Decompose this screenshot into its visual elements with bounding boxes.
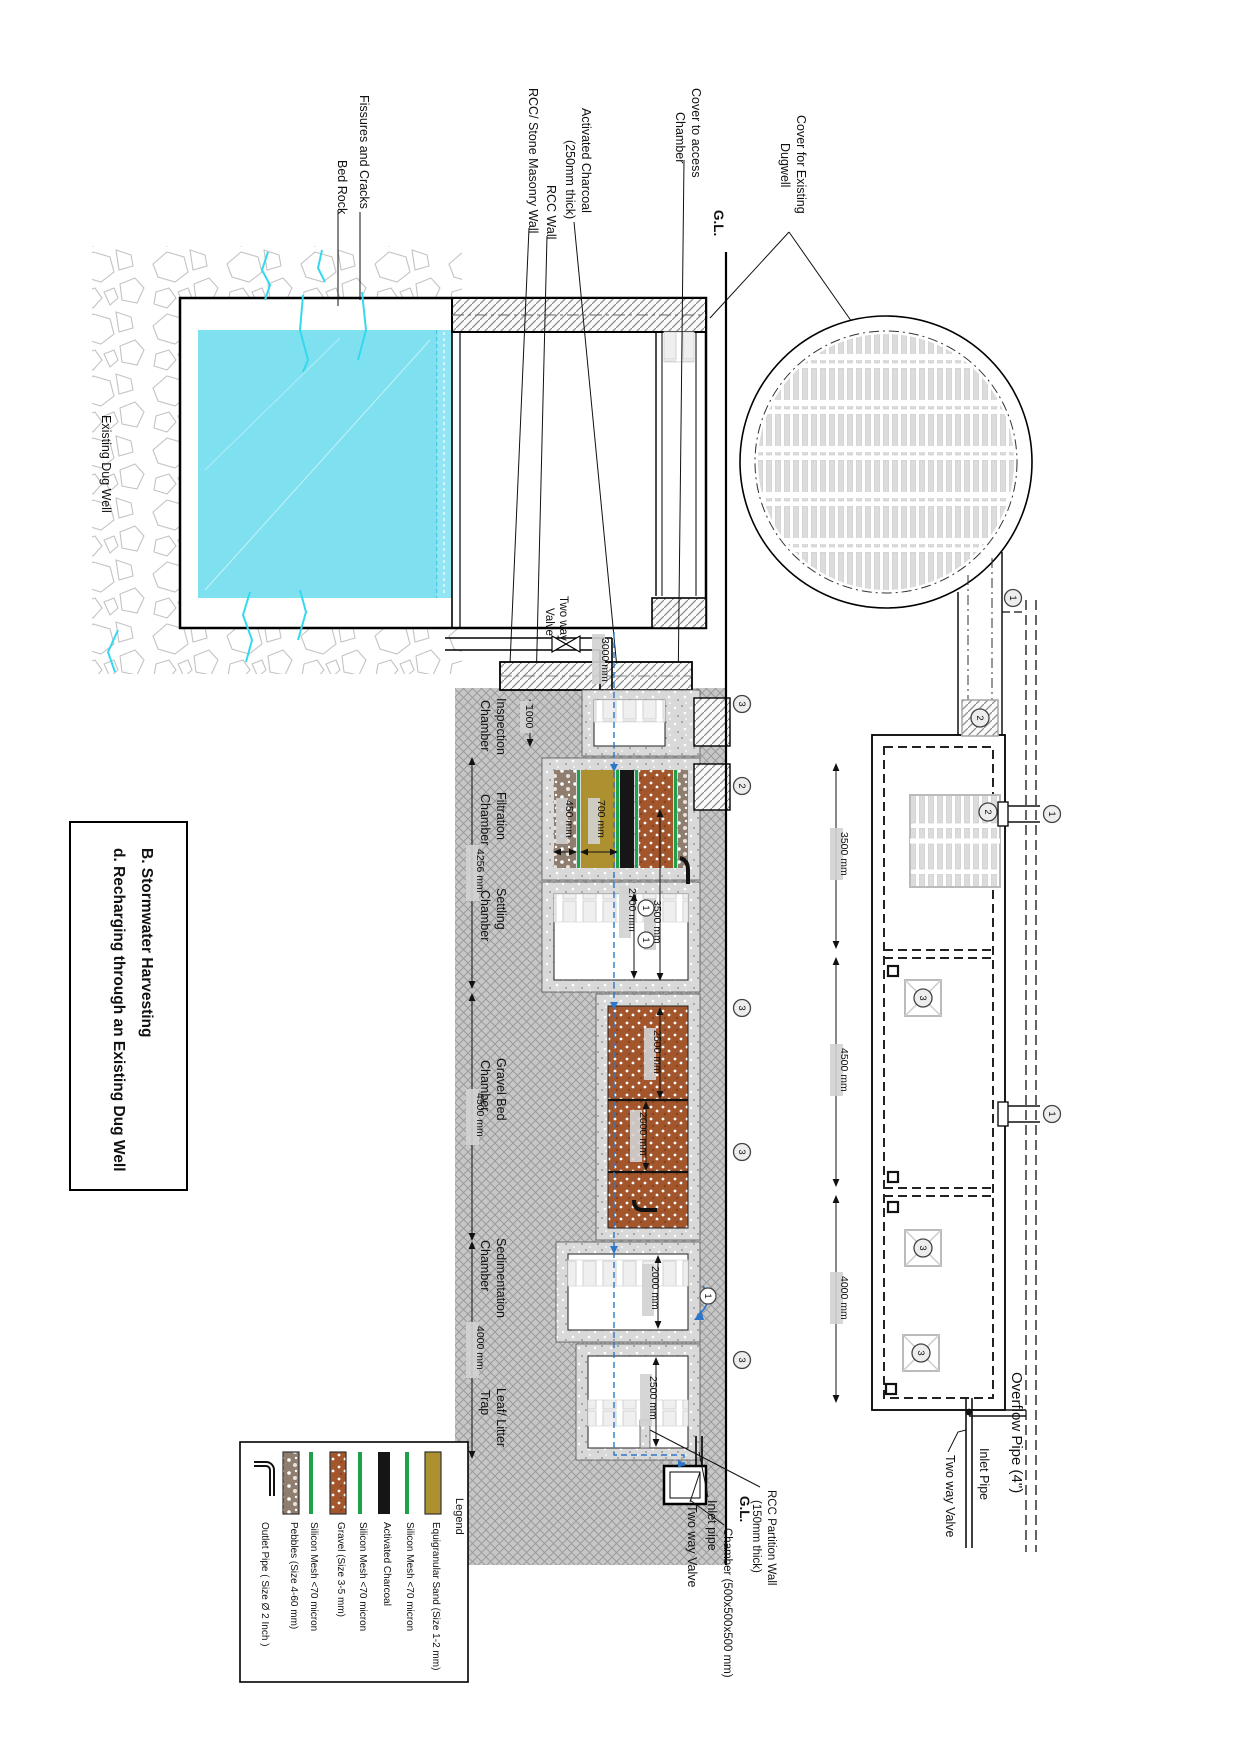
dim-4000: 4000 mm — [474, 1326, 486, 1370]
marker-2: 2 — [736, 783, 747, 788]
gl-top-label: G.L. — [711, 210, 726, 236]
dim-2000: 2000 mm — [637, 1112, 649, 1156]
legend-outlet-pipe-label: Outlet Pipe ( Size Ø 2 Inch ) — [259, 1522, 270, 1647]
inlet-pipe-plan-label: Inlet Pipe — [977, 1448, 991, 1500]
filtration-chamber-label-1: Filtration — [494, 792, 508, 840]
dim-1000: 1000 — [523, 705, 535, 729]
plan-valve-stubs: 1 1 — [998, 802, 1061, 1126]
title-block: B. Stormwater Harvesting d. Recharging t… — [70, 822, 187, 1190]
gl-bottom-label: G.L. — [737, 1496, 752, 1522]
legend-pebbles-label: Pebbles (Size 4-60 mm) — [288, 1522, 299, 1629]
inspection-chamber-label-1: Inspection — [494, 698, 508, 755]
plan-dim-4500: 4500 mm — [838, 1048, 850, 1092]
settling-chamber-label-2: Chamber — [478, 890, 492, 941]
overflow-pipe-label: Overflow Pipe (4") — [1008, 1372, 1025, 1493]
title-line-1: B. Stormwater Harvesting — [138, 848, 155, 1038]
marker-3: 3 — [917, 1245, 928, 1250]
marker-3: 3 — [736, 701, 747, 706]
chamber-train-plan: 2 3 3 3 2 1 — [830, 552, 1061, 1552]
marker-1: 1 — [1007, 595, 1018, 600]
filtration-chamber-label-2: Chamber — [478, 794, 492, 845]
plan-dimensions: 3500 mm 4500 mm 4000 mm — [830, 764, 850, 1402]
title-line-2: d. Recharging through an Existing Dug We… — [110, 848, 127, 1172]
dim-sed-2000: 2000 mm — [649, 1266, 661, 1310]
marker-1: 1 — [1046, 811, 1057, 816]
existing-dug-well-label: Existing Dug Well — [99, 415, 113, 513]
drawing-page: Existing Dug Well Fissures and Cracks Be… — [0, 0, 1241, 1755]
activated-charcoal-label-2: (250mm thick) — [563, 140, 577, 219]
two-way-valve-top-label-1: Two way — [557, 596, 569, 641]
legend-charcoal-label: Activated Charcoal — [381, 1522, 392, 1606]
activated-charcoal-label-1: Activated Charcoal — [579, 108, 593, 213]
marker-1: 1 — [1046, 1111, 1057, 1116]
marker-3: 3 — [917, 995, 928, 1000]
legend-sand-label: Equigranular Sand (Size 1-2 mm) — [430, 1522, 441, 1670]
dim-2500: 2500 mm — [651, 1030, 663, 1074]
two-way-valve-bottom-label: Two way Valve — [685, 1505, 699, 1587]
leaf-litter-trap-label-2: Trap — [478, 1390, 492, 1415]
marker-2: 2 — [982, 809, 993, 814]
sedimentation-chamber-label-2: Chamber — [478, 1240, 492, 1291]
marker-1: 1 — [640, 905, 651, 910]
pebbles-swatch — [283, 1452, 299, 1514]
two-way-valve-plan-label: Two way Valve — [943, 1455, 957, 1537]
marker-3: 3 — [736, 1357, 747, 1362]
sand-swatch — [425, 1452, 441, 1514]
gravel-bed-chamber-label-1: Gravel Bed — [494, 1058, 508, 1121]
dim-4256: 4256 mm — [474, 849, 486, 893]
legend-title: Legend — [453, 1498, 465, 1535]
two-way-valve-top-label-2: Valve — [543, 608, 555, 636]
well-section: Existing Dug Well — [92, 246, 706, 674]
marker-1: 1 — [640, 937, 651, 942]
chamber-size-label: Chamber (500x500x500 mm) — [721, 1528, 733, 1678]
bed-rock-label: Bed Rock — [335, 160, 349, 215]
fissures-label: Fissures and Cracks — [357, 95, 371, 209]
dim-3000: 3000 mm — [599, 638, 611, 682]
filtration-cover — [694, 764, 730, 810]
gravel-swatch — [330, 1452, 346, 1514]
dim-2700: 2700 mm — [626, 888, 638, 932]
rcc-partition-label-1: RCC Partition Wall — [765, 1490, 777, 1585]
legend: Legend Outlet Pipe ( Size Ø 2 Inch ) Peb… — [240, 1442, 468, 1682]
rcc-partition-label-2: (150mm thick) — [750, 1500, 762, 1573]
settling-chamber-label-1: Settling — [494, 888, 508, 930]
stormwater-harvesting-drawing: Existing Dug Well Fissures and Cracks Be… — [0, 0, 1241, 1755]
rcc-stone-label: RCC/ Stone Masonry Wall — [526, 88, 540, 233]
legend-gravel-label: Gravel (Size 3-5 mm) — [335, 1522, 346, 1617]
cover-dugwell-label-1: Cover for Existing — [794, 115, 808, 214]
cover-access-label-1: Cover to access — [689, 88, 703, 178]
legend-mesh-label-3: Silicon Mesh <70 micron — [404, 1522, 415, 1631]
inspection-cover — [694, 698, 730, 746]
rcc-wall-label: RCC Wall — [544, 185, 558, 239]
cover-access-label-2: Chamber — [673, 112, 687, 163]
dim-450: 450 mm — [563, 800, 575, 838]
marker-1: 1 — [702, 1293, 713, 1298]
dim-leaf-2500: 2500 mm — [647, 1376, 659, 1420]
legend-mesh-label-2: Silicon Mesh <70 micron — [357, 1522, 368, 1631]
marker-3: 3 — [736, 1005, 747, 1010]
access-shaft-grating — [664, 332, 694, 362]
plan-dim-4000: 4000 mm — [838, 1276, 850, 1320]
inspection-chamber-label-2: Chamber — [478, 700, 492, 751]
dim-4500: 4500 mm — [474, 1093, 486, 1137]
legend-mesh-label-1: Silicon Mesh <70 micron — [308, 1522, 319, 1631]
cover-dugwell-label-2: Dugwell — [778, 143, 792, 187]
sedimentation-chamber-label-1: Sedimentation — [494, 1238, 508, 1318]
leaf-litter-trap-label-1: Leaf/ Litter — [494, 1388, 508, 1447]
activated-charcoal-swatch — [378, 1452, 390, 1514]
plan-dim-3500: 3500 mm — [838, 832, 850, 876]
marker-2: 2 — [974, 715, 985, 720]
marker-3: 3 — [736, 1149, 747, 1154]
marker-3: 3 — [915, 1350, 926, 1355]
dugwell-plan-circle — [740, 316, 1032, 608]
inlet-pipe-section-label: Inlet pipe — [705, 1500, 719, 1551]
dim-700: 700 mm — [595, 800, 607, 838]
